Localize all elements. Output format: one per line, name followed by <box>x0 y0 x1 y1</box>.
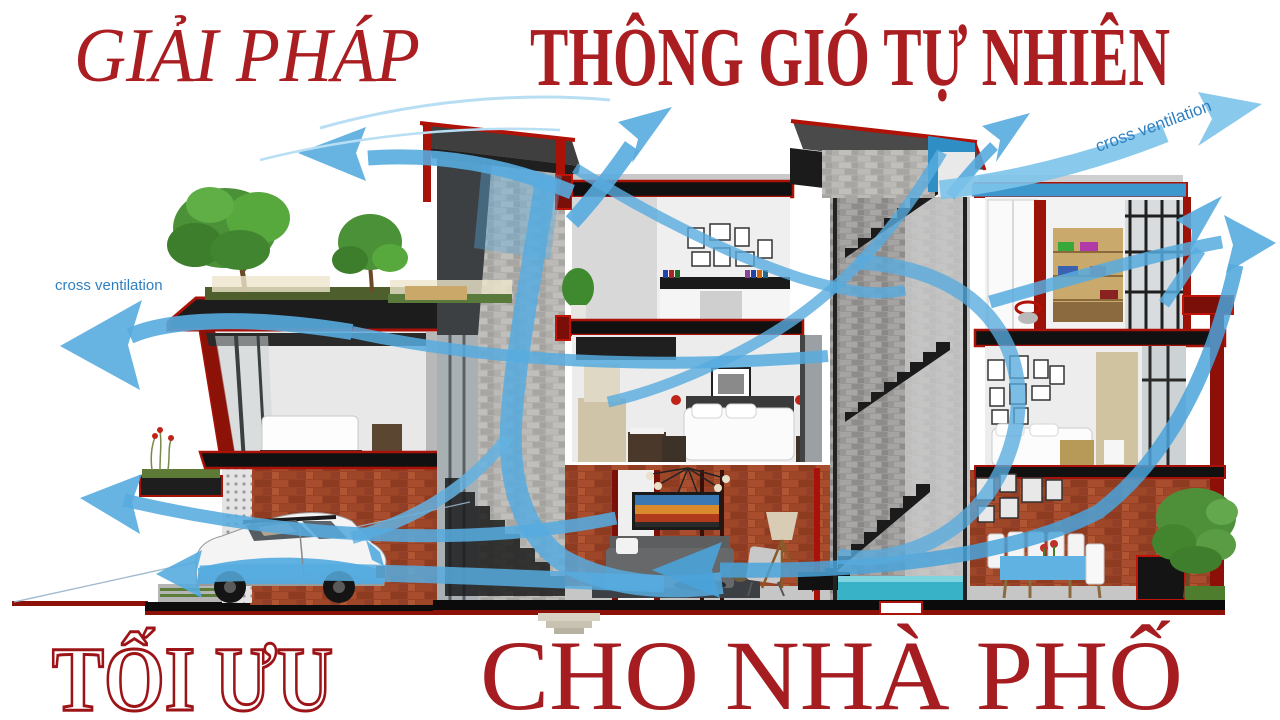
svg-text:CHO NHÀ PHỐ: CHO NHÀ PHỐ <box>480 620 1183 720</box>
svg-text:THÔNG GIÓ TỰ NHIÊN: THÔNG GIÓ TỰ NHIÊN <box>530 11 1170 104</box>
svg-text:cross ventilation: cross ventilation <box>55 277 163 294</box>
svg-text:TỐI ƯU: TỐI ƯU <box>52 628 333 720</box>
svg-text:GIẢI PHÁP: GIẢI PHÁP <box>74 12 420 98</box>
